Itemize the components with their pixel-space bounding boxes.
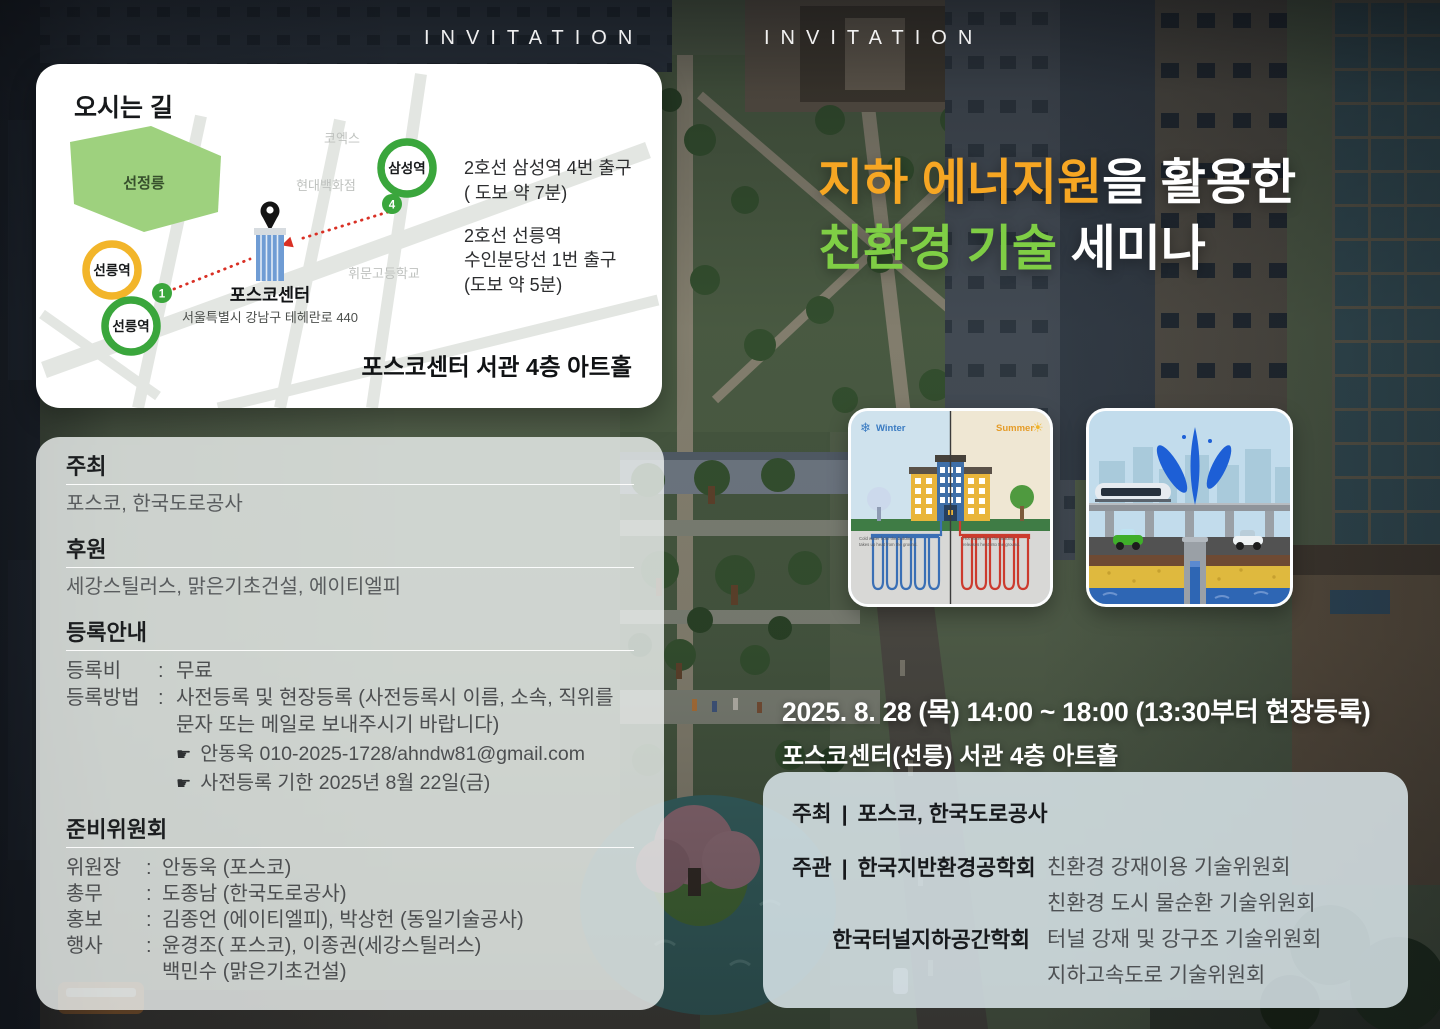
committee-member-cont: 백민수 (맑은기초건설) bbox=[162, 959, 634, 985]
station-seolleung-line2-label: 선릉역 bbox=[112, 318, 149, 334]
separator: | bbox=[842, 799, 848, 829]
sun-icon: ☀ bbox=[1032, 420, 1044, 435]
registration-heading: 등록안내 bbox=[66, 620, 634, 645]
svg-text:takes up heat from the ground.: takes up heat from the ground. bbox=[859, 542, 918, 547]
fee-label: 등록비 bbox=[66, 658, 158, 685]
station-seolleung-line2: 선릉역 bbox=[105, 300, 157, 352]
poi-whimoon-label: 휘문고등학교 bbox=[348, 266, 420, 281]
committee-names-column: 친환경 강재이용 기술위원회 친환경 도시 물순환 기술위원회 터널 강재 및 … bbox=[1047, 850, 1322, 994]
org-host-label: 주최 bbox=[792, 799, 832, 829]
pointer-icon: ☛ bbox=[176, 771, 191, 797]
contact-value: 안동욱 010-2025-1728/ahndw81@gmail.com bbox=[200, 741, 585, 767]
station-samseong: 삼성역 bbox=[381, 142, 433, 194]
separator: | bbox=[842, 850, 848, 886]
svg-text:releases heat into the ground.: releases heat into the ground. bbox=[963, 542, 1020, 547]
org-host-row: 주최 | 포스코, 한국도로공사 bbox=[792, 799, 1388, 829]
sponsor-heading: 후원 bbox=[66, 537, 634, 562]
transit-directions: 2호선 삼성역 4번 출구 ( 도보 약 7분) 2호선 선릉역 수인분당선 1… bbox=[464, 156, 632, 298]
directions-title: 오시는 길 bbox=[74, 88, 173, 124]
colon: : bbox=[158, 685, 176, 797]
contact-line: ☛ 안동욱 010-2025-1728/ahndw81@gmail.com bbox=[176, 741, 634, 768]
venue-pin-icon bbox=[261, 202, 280, 232]
summer-label: Summer bbox=[996, 423, 1034, 434]
directions-card: 선정릉 코엑스 현대백화점 휘문고등학교 bbox=[36, 64, 662, 408]
groundwater-diagram bbox=[1089, 411, 1290, 604]
event-venue: 포스코센터(선릉) 서관 4층 아트홀 bbox=[782, 736, 1370, 771]
station-samseong-label: 삼성역 bbox=[388, 160, 425, 176]
svg-text:Hot water from the building: Hot water from the building bbox=[963, 536, 1015, 541]
divider bbox=[66, 650, 634, 651]
station-seolleung-bundang: 선릉역 bbox=[86, 244, 138, 296]
headline-line1-highlight: 지하 에너지원 bbox=[818, 156, 1102, 210]
groundwater-diagram-card bbox=[1086, 408, 1293, 607]
headline-line2: 친환경 기술 세미나 bbox=[818, 216, 1296, 282]
event-datetime: 2025. 8. 28 (목) 14:00 ~ 18:00 (13:30부터 현… bbox=[782, 690, 1370, 729]
exit-badge-4: 4 bbox=[382, 194, 402, 214]
committee-table: 위원장 : 안동욱 (포스코) 총무 : 도종남 (한국도로공사) 홍보 : 김… bbox=[66, 855, 634, 985]
event-datetime-block: 2025. 8. 28 (목) 14:00 ~ 18:00 (13:30부터 현… bbox=[782, 690, 1370, 771]
headline-line2-highlight: 친환경 기술 bbox=[818, 222, 1057, 276]
poster: INVITATION INVITATION 선정릉 코엑스 bbox=[0, 0, 1440, 1029]
org1-committee-2: 친환경 도시 물순환 기술위원회 bbox=[1047, 886, 1322, 922]
sponsor-value: 세강스틸러스, 맑은기초건설, 에이티엘피 bbox=[66, 575, 634, 600]
poi-hyundai-label: 현대백화점 bbox=[296, 178, 356, 193]
method-label: 등록방법 bbox=[66, 685, 158, 797]
committee-member: 김종언 (에이티엘피), 박상헌 (동일기술공사) bbox=[162, 907, 634, 933]
committee-member: 안동욱 (포스코) bbox=[162, 855, 634, 881]
well-structure bbox=[1182, 537, 1208, 604]
colon: : bbox=[146, 881, 162, 907]
svg-text:4: 4 bbox=[389, 200, 396, 212]
org2-committee-2: 지하고속도로 기술위원회 bbox=[1047, 958, 1322, 994]
direction-samseong-line1: 2호선 삼성역 4번 출구 bbox=[464, 156, 632, 181]
host-heading: 주최 bbox=[66, 454, 634, 479]
winter-label: Winter bbox=[876, 423, 906, 434]
deadline-line: ☛ 사전등록 기한 2025년 8월 22일(금) bbox=[176, 770, 634, 797]
org-host-value: 포스코, 한국도로공사 bbox=[858, 799, 1048, 829]
station-seolleung-bundang-label: 선릉역 bbox=[93, 262, 130, 278]
divider bbox=[66, 847, 634, 848]
direction-seolleung-line2: 수인분당선 1번 출구 bbox=[464, 248, 632, 273]
deadline-value: 사전등록 기한 2025년 8월 22일(금) bbox=[200, 770, 490, 796]
venue-name-label: 포스코센터 bbox=[230, 285, 311, 305]
fee-value: 무료 bbox=[176, 658, 634, 685]
organizer-card: 주최 | 포스코, 한국도로공사 주관 | 한국지반환경공학회 한국터널지하공간… bbox=[763, 772, 1408, 1008]
organizer-name-1: 한국지반환경공학회 bbox=[858, 850, 1036, 886]
seminar-info-card: 주최 포스코, 한국도로공사 후원 세강스틸러스, 맑은기초건설, 에이티엘피 … bbox=[36, 437, 664, 1010]
host-value: 포스코, 한국도로공사 bbox=[66, 492, 634, 517]
poi-coex-label: 코엑스 bbox=[324, 131, 360, 146]
exit-badge-1: 1 bbox=[152, 283, 172, 303]
method-value: 사전등록 및 현장등록 (사전등록시 이름, 소속, 직위를 문자 또는 메일로… bbox=[176, 685, 634, 797]
committee-role: 총무 bbox=[66, 881, 146, 907]
snowflake-icon: ❄ bbox=[860, 420, 871, 435]
headline-line1: 지하 에너지원을 활용한 bbox=[818, 150, 1296, 216]
method-line2: 문자 또는 메일로 보내주시기 바랍니다) bbox=[176, 712, 634, 739]
pointer-icon: ☛ bbox=[176, 742, 191, 768]
svg-text:Cold water from the building: Cold water from the building bbox=[859, 536, 913, 541]
colon: : bbox=[146, 855, 162, 881]
headline-line2-rest: 세미나 bbox=[1057, 222, 1206, 276]
geothermal-diagram-card: ❄ Winter Summer ☀ Cold water from the bu… bbox=[848, 408, 1053, 607]
organizer-label: 주관 bbox=[792, 850, 832, 886]
divider bbox=[66, 484, 634, 485]
committee-heading: 준비위원회 bbox=[66, 817, 634, 842]
colon: : bbox=[146, 933, 162, 959]
map-park-label: 선정릉 bbox=[123, 174, 165, 192]
invitation-text-right: INVITATION bbox=[764, 27, 983, 50]
committee-role: 위원장 bbox=[66, 855, 146, 881]
colon: : bbox=[158, 658, 176, 685]
committee-member: 윤경조( 포스코), 이종권(세강스틸러스) bbox=[162, 933, 634, 959]
geothermal-diagram: ❄ Winter Summer ☀ Cold water from the bu… bbox=[851, 411, 1050, 604]
svg-text:1: 1 bbox=[159, 289, 166, 301]
org-organizer-rows: 주관 | 한국지반환경공학회 한국터널지하공간학회 친환경 강재이용 기술위원회… bbox=[792, 850, 1388, 994]
venue-address-label: 서울특별시 강남구 테헤란로 440 bbox=[182, 310, 358, 325]
org2-committee-1: 터널 강재 및 강구조 기술위원회 bbox=[1047, 922, 1322, 958]
headline-line1-rest: 을 활용한 bbox=[1102, 156, 1296, 210]
committee-member: 도종남 (한국도로공사) bbox=[162, 881, 634, 907]
direction-seolleung-line1: 2호선 선릉역 bbox=[464, 224, 632, 249]
invitation-text-left: INVITATION bbox=[424, 27, 643, 50]
registration-table: 등록비 : 무료 등록방법 : 사전등록 및 현장등록 (사전등록시 이름, 소… bbox=[66, 658, 634, 797]
direction-samseong-line2: ( 도보 약 7분) bbox=[464, 181, 632, 206]
org1-committee-1: 친환경 강재이용 기술위원회 bbox=[1047, 850, 1322, 886]
divider bbox=[66, 567, 634, 568]
organizer-name-2: 한국터널지하공간학회 bbox=[792, 922, 1030, 958]
method-line1: 사전등록 및 현장등록 (사전등록시 이름, 소속, 직위를 bbox=[176, 685, 634, 712]
organizer-names-column: 주관 | 한국지반환경공학회 한국터널지하공간학회 bbox=[792, 850, 1030, 994]
organizer-row: 주관 | 한국지반환경공학회 bbox=[792, 850, 1030, 886]
colon: : bbox=[146, 907, 162, 933]
venue-building-icon bbox=[254, 228, 286, 281]
seminar-headline: 지하 에너지원을 활용한 친환경 기술 세미나 bbox=[818, 150, 1296, 282]
venue-hall-label: 포스코센터 서관 4층 아트홀 bbox=[362, 348, 632, 382]
direction-seolleung-line3: (도보 약 5분) bbox=[464, 273, 632, 298]
committee-role: 홍보 bbox=[66, 907, 146, 933]
train-icon bbox=[1095, 483, 1171, 502]
committee-role: 행사 bbox=[66, 933, 146, 959]
